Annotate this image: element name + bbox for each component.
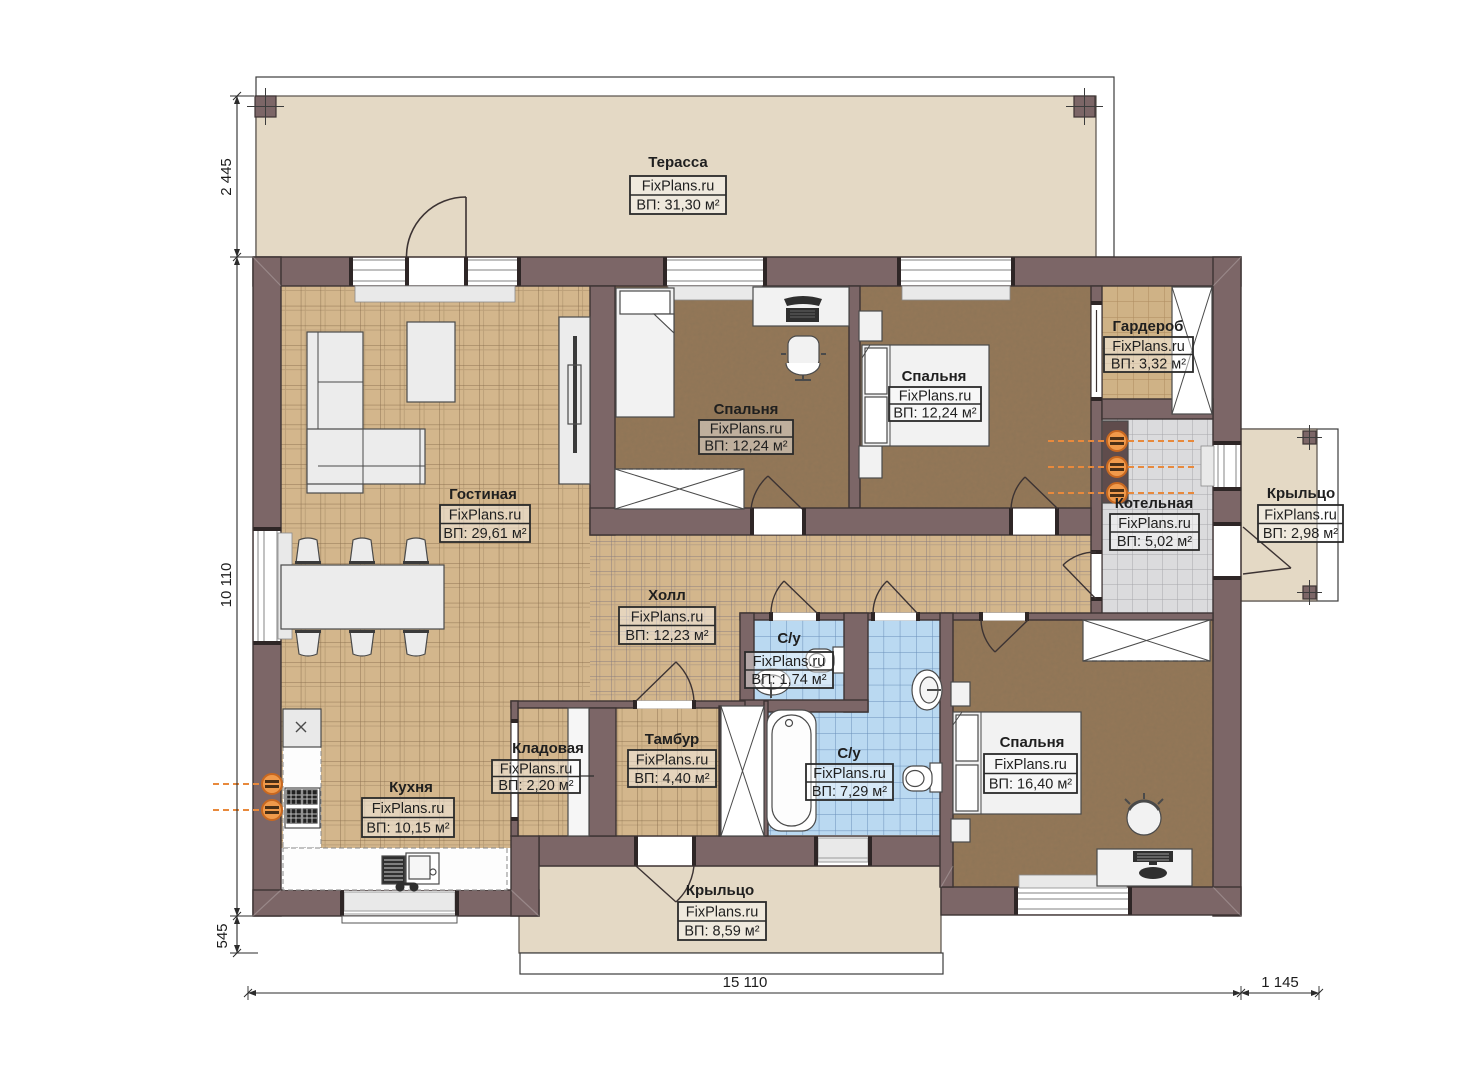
svg-text:ВП: 8,59 м²: ВП: 8,59 м² — [684, 924, 759, 940]
svg-text:Гостиная: Гостиная — [449, 486, 517, 503]
svg-text:Кладовая: Кладовая — [512, 740, 584, 757]
svg-text:ВП: 29,61 м²: ВП: 29,61 м² — [443, 526, 526, 542]
svg-text:FixPlans.ru: FixPlans.ru — [372, 801, 445, 817]
svg-text:545: 545 — [214, 923, 231, 948]
svg-text:ВП: 2,98 м²: ВП: 2,98 м² — [1263, 526, 1338, 542]
svg-text:2 445: 2 445 — [218, 158, 235, 196]
svg-text:FixPlans.ru: FixPlans.ru — [813, 766, 886, 782]
svg-text:Терасса: Терасса — [648, 154, 708, 171]
svg-text:Котельная: Котельная — [1115, 495, 1194, 512]
svg-text:FixPlans.ru: FixPlans.ru — [500, 762, 573, 778]
svg-text:ВП: 1,74 м²: ВП: 1,74 м² — [751, 672, 826, 688]
svg-text:ВП: 10,15 м²: ВП: 10,15 м² — [366, 821, 449, 837]
svg-text:1 145: 1 145 — [1261, 974, 1299, 991]
svg-text:Спальня: Спальня — [1000, 734, 1065, 751]
svg-text:ВП: 31,30 м²: ВП: 31,30 м² — [636, 198, 719, 214]
svg-text:FixPlans.ru: FixPlans.ru — [449, 508, 522, 524]
svg-text:FixPlans.ru: FixPlans.ru — [1118, 516, 1191, 532]
svg-text:Спальня: Спальня — [714, 401, 779, 418]
svg-text:ВП: 2,20 м²: ВП: 2,20 м² — [498, 778, 573, 794]
svg-text:ВП: 12,24 м²: ВП: 12,24 м² — [704, 439, 787, 455]
svg-text:15 110: 15 110 — [723, 974, 768, 991]
svg-text:FixPlans.ru: FixPlans.ru — [631, 610, 704, 626]
svg-text:С/у: С/у — [837, 745, 861, 762]
svg-text:10 110: 10 110 — [218, 563, 235, 608]
svg-text:С/у: С/у — [777, 630, 801, 647]
svg-text:FixPlans.ru: FixPlans.ru — [899, 389, 972, 405]
svg-text:Крыльцо: Крыльцо — [1267, 485, 1335, 502]
svg-text:Тамбур: Тамбур — [645, 731, 699, 748]
svg-text:FixPlans.ru: FixPlans.ru — [686, 905, 759, 921]
svg-text:Гардероб: Гардероб — [1113, 318, 1184, 335]
svg-text:FixPlans.ru: FixPlans.ru — [753, 654, 826, 670]
svg-text:FixPlans.ru: FixPlans.ru — [636, 753, 709, 769]
svg-text:Спальня: Спальня — [902, 368, 967, 385]
svg-text:Кухня: Кухня — [389, 779, 433, 796]
svg-text:ВП: 16,40 м²: ВП: 16,40 м² — [989, 777, 1072, 793]
svg-text:FixPlans.ru: FixPlans.ru — [1112, 339, 1185, 355]
svg-text:Крыльцо: Крыльцо — [686, 882, 754, 899]
svg-text:ВП: 12,23 м²: ВП: 12,23 м² — [625, 628, 708, 644]
svg-text:ВП: 4,40 м²: ВП: 4,40 м² — [634, 771, 709, 787]
svg-text:ВП: 7,29 м²: ВП: 7,29 м² — [812, 784, 887, 800]
svg-text:FixPlans.ru: FixPlans.ru — [994, 757, 1067, 773]
svg-text:ВП: 5,02 м²: ВП: 5,02 м² — [1117, 534, 1192, 550]
svg-text:ВП: 12,24 м²: ВП: 12,24 м² — [893, 406, 976, 422]
svg-text:FixPlans.ru: FixPlans.ru — [642, 179, 715, 195]
svg-text:FixPlans.ru: FixPlans.ru — [1264, 508, 1337, 524]
svg-text:ВП: 3,32 м²: ВП: 3,32 м² — [1111, 356, 1186, 372]
svg-text:FixPlans.ru: FixPlans.ru — [710, 422, 783, 438]
svg-text:Холл: Холл — [648, 587, 686, 604]
